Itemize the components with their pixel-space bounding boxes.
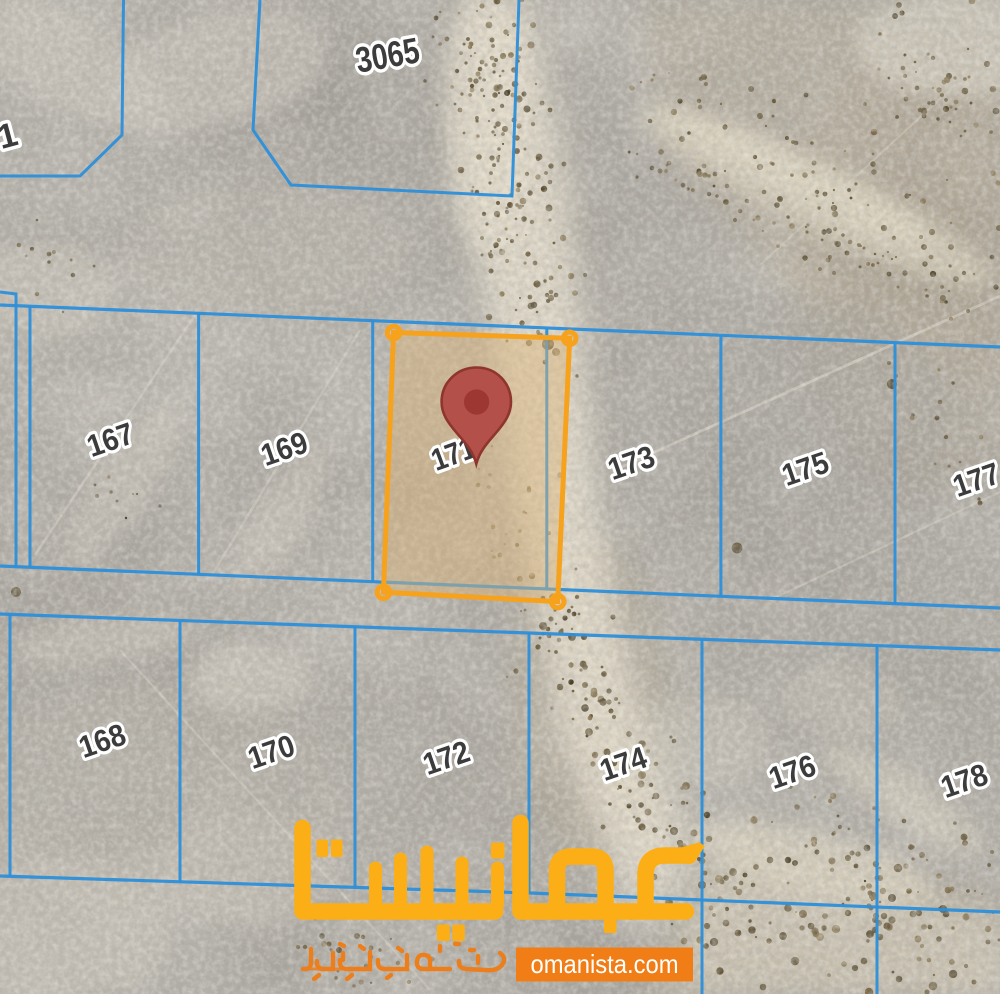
svg-text:omanista.com: omanista.com: [531, 949, 679, 979]
